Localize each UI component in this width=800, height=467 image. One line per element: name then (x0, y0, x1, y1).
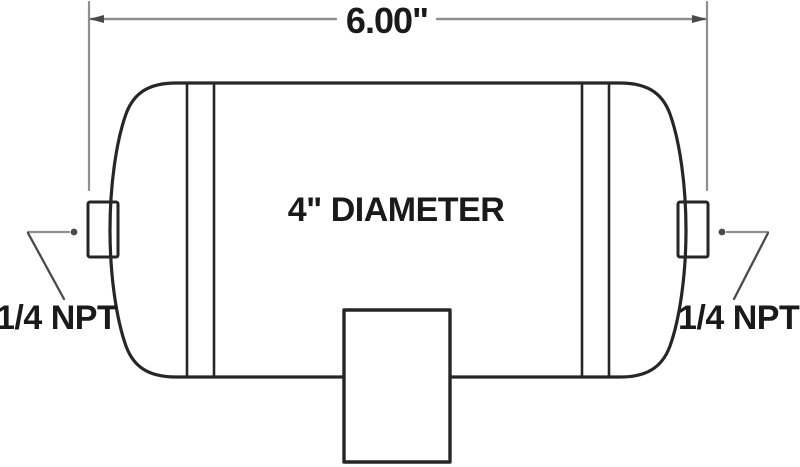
dimension-arrowhead-right-icon (692, 15, 707, 23)
tank-group (88, 83, 708, 462)
tank-drawing: 6.00" 4" DIAMETER 1/4 NPT 1/4 NPT (0, 0, 800, 467)
left-port-leader-diagonal (28, 233, 64, 299)
technical-drawing-canvas: 6.00" 4" DIAMETER 1/4 NPT 1/4 NPT (0, 0, 800, 467)
right-port-label: 1/4 NPT (678, 299, 800, 337)
left-port-label: 1/4 NPT (0, 299, 118, 337)
right-port-leader-diagonal (734, 233, 768, 299)
left-leader-dot-icon (71, 229, 78, 236)
dimension-arrowhead-left-icon (89, 15, 104, 23)
length-dimension-label: 6.00" (346, 0, 428, 41)
bottom-mounting-bracket (344, 310, 450, 462)
diameter-label: 4" DIAMETER (288, 191, 505, 229)
right-leader-dot-icon (719, 229, 726, 236)
